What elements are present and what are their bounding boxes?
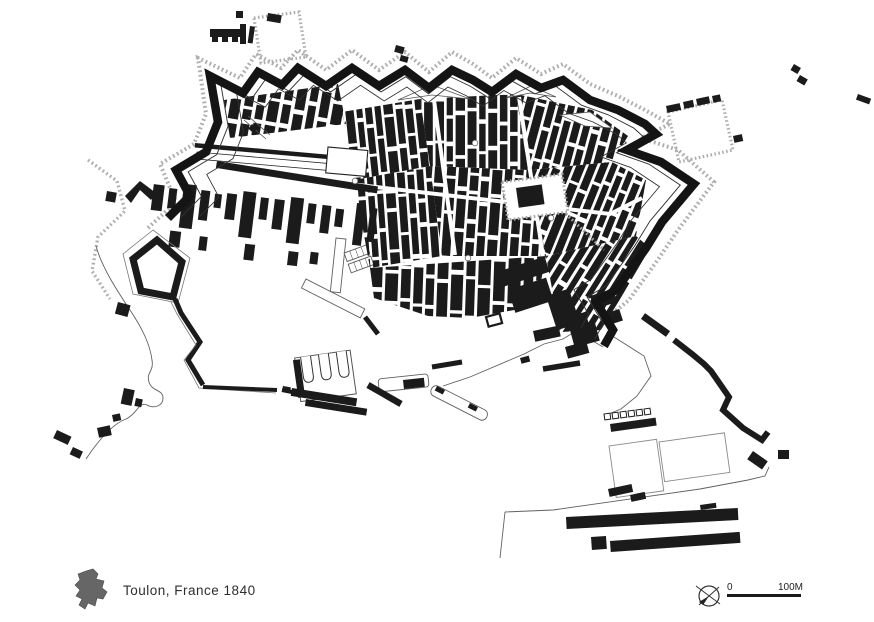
dock-teeth: [604, 408, 651, 420]
map-title: Toulon, France 1840: [123, 583, 256, 598]
scale-bar: 0 100M: [727, 582, 805, 597]
harbour-fortlet: [486, 313, 502, 326]
hatched-pier: [344, 245, 374, 273]
harbour-piers: [403, 362, 580, 412]
scale-bar-line: [727, 594, 801, 597]
district-silhouette-icon: [74, 568, 108, 612]
breakwaters: [566, 503, 740, 552]
mourillon-inlet: [606, 337, 651, 415]
arsenal: [105, 143, 401, 416]
scale-distance-label: 100M: [778, 582, 803, 593]
west-harbour-wall: [175, 299, 203, 385]
harbor-basin: [659, 433, 730, 482]
scattered-structures: [53, 388, 143, 459]
west-coastline: [86, 246, 163, 459]
map-legend: Toulon, France 1840: [74, 568, 256, 612]
scale-indicator: 0 100M: [695, 582, 805, 610]
quay-strip: [330, 238, 346, 293]
west-l-building: [125, 181, 156, 203]
map-page: Toulon, France 1840 0 100M: [0, 0, 874, 622]
compass-rose-icon: [695, 582, 723, 610]
toulon-figure-ground-map: [0, 0, 874, 622]
gate-building: [326, 147, 368, 176]
scale-zero-label: 0: [727, 582, 733, 593]
pentagon-bastion: [133, 240, 182, 297]
